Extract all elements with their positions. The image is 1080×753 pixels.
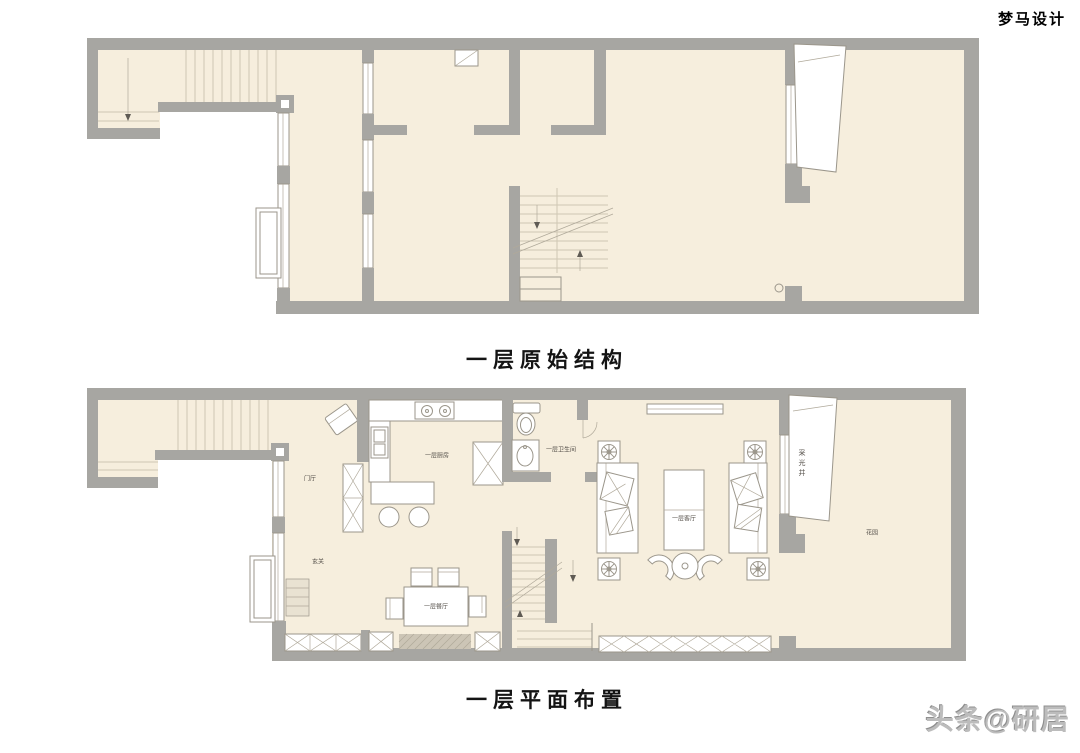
sofa-right: [729, 463, 767, 553]
shaft: [455, 50, 478, 66]
label-entry-hall: 门厅: [304, 474, 316, 483]
foyer-bench: [285, 634, 361, 651]
living-window-row: [599, 636, 771, 652]
label-bathroom: 一层卫生间: [546, 445, 576, 454]
watermark-designer: 梦马设计: [998, 8, 1066, 29]
label-foyer: 玄关: [312, 557, 324, 566]
bathroom-vanity: [512, 440, 539, 471]
label-kitchen: 一层厨房: [425, 451, 449, 460]
pantry-cabinet: [473, 442, 503, 485]
tv-bench: [647, 404, 723, 414]
label-living: 一层客厅: [672, 514, 696, 523]
hall-cabinet: [343, 464, 363, 532]
label-dining: 一层餐厅: [424, 602, 448, 611]
dining-window-cabinets: [369, 632, 500, 651]
watermark-toutiao: 头条@研居: [926, 698, 1070, 738]
foyer-rug: [286, 579, 309, 616]
coffee-table: [664, 470, 704, 550]
bay-window-original: [256, 208, 281, 278]
sofa-left: [597, 463, 638, 553]
floor-plan-page: 梦马设计 头条@研居 一层原始结构 一层平面布置 门厅 玄关 一层厨房 一层卫生…: [0, 0, 1080, 753]
plan-layout-drawing: [87, 388, 966, 661]
label-garden: 花园: [866, 528, 878, 537]
bay-window-layout: [250, 556, 275, 622]
title-original-structure: 一层原始结构: [466, 344, 628, 374]
plans-svg: [0, 0, 1080, 753]
title-floor-layout: 一层平面布置: [466, 684, 628, 714]
label-light-well: 采光井: [796, 449, 806, 479]
plan-original-drawing: [87, 38, 979, 314]
